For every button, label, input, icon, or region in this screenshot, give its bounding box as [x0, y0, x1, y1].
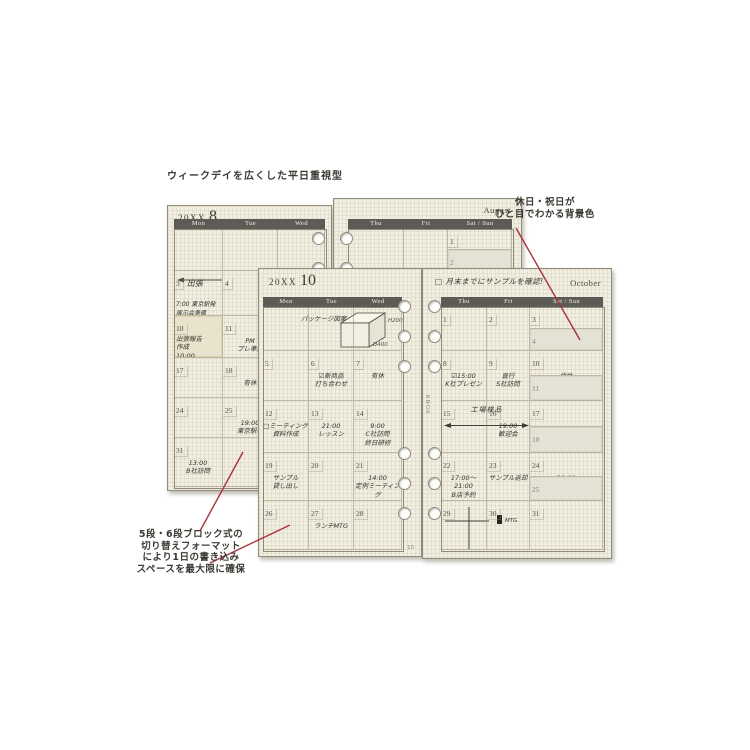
day-number: 18: [223, 366, 237, 377]
weekday-header-band: ThuFriSat / Sun: [348, 219, 512, 229]
brand-logo: KNOX: [424, 395, 430, 414]
october-right-page: □月末までにサンプルを確認! October KNOX 工場検品 MTG Thu…: [422, 268, 612, 559]
day-number: 9: [487, 359, 497, 370]
handwritten-note: ランチMTG: [309, 522, 353, 530]
handwritten-note: ☑新商品 打ち合わせ: [309, 372, 353, 389]
day-number: 3: [530, 315, 540, 326]
day-cell-25: 25: [530, 477, 603, 501]
weekday-header-band: ThuFriSat / Sun: [441, 297, 603, 307]
weekday-label: Wed: [295, 220, 308, 227]
day-number: 17: [530, 409, 544, 420]
day-number: 20: [309, 461, 323, 472]
day-number: 24: [174, 406, 188, 417]
memo-line: □月末までにサンプルを確認!: [435, 276, 543, 287]
day-cell-6: 6☑新商品 打ち合わせ: [309, 351, 354, 401]
title-month-number: 10: [300, 273, 316, 288]
day-cell: [404, 229, 448, 271]
october-left-page: 20XX 10 パッケージ図案 W250 H200 D400 10 MonTue…: [258, 268, 422, 557]
day-cell-18: 18: [530, 427, 603, 453]
weekday-header-band: MonTueWed: [263, 297, 402, 307]
handwritten-detail: 7:00 東京駅発 展示会準備: [174, 300, 222, 316]
memo-text: 月末までにサンプルを確認!: [446, 277, 544, 286]
day-entry-label: 出張: [187, 279, 203, 288]
day-number: 17: [174, 366, 188, 377]
day-cell-7: 7有休: [354, 351, 402, 401]
weekday-label: Thu: [458, 298, 470, 305]
binder-hole: [428, 477, 441, 490]
day-cell-15: 15: [441, 401, 487, 453]
binder-hole: [398, 360, 411, 373]
holiday-callout-line2: ひと目でわかる背景色: [488, 209, 602, 221]
october-page-title: 20XX 10: [269, 273, 316, 288]
day-number: 12: [263, 409, 277, 420]
day-cell-16: 1619:00 歓迎会: [487, 401, 530, 453]
product-image-canvas: ウィークデイを広くした平日重視型 休日・祝日が ひと目でわかる背景色 5段・6段…: [0, 0, 750, 750]
day-number: 16: [487, 409, 501, 420]
day-cell-29: 29: [441, 501, 487, 550]
weekday-label: Wed: [372, 298, 385, 305]
binder-hole: [398, 330, 411, 343]
day-number: 11: [223, 324, 236, 335]
day-number: 6: [309, 359, 319, 370]
october-month-label: October: [570, 278, 601, 288]
weekday-label: Fri: [422, 220, 431, 227]
day-cell: [174, 229, 223, 271]
day-cell-5: 5: [263, 351, 309, 401]
day-number: 21: [354, 461, 368, 472]
day-cell: [263, 307, 309, 351]
binder-hole: [398, 447, 411, 460]
format-callout: 5段・6段ブロック式の 切り替えフォーマット により1日の書き込み スペースを最…: [132, 529, 250, 575]
handwritten-note: 19:00 歓迎会: [487, 422, 529, 439]
day-number: 24: [530, 461, 544, 472]
binder-hole: [398, 507, 411, 520]
day-cell: [354, 307, 402, 351]
binder-hole: [428, 330, 441, 343]
binder-hole: [428, 507, 441, 520]
day-number: 10: [174, 324, 188, 335]
checkbox-icon: □: [435, 277, 443, 286]
day-cell-14: 149:00 C社訪問 終日研修: [354, 401, 402, 453]
weekday-label: Fri: [504, 298, 513, 305]
day-cell-1: 1: [441, 307, 487, 351]
day-number: 18: [530, 435, 544, 446]
day-number: 11: [530, 384, 543, 395]
handwritten-note: サンプル 貸し出し: [263, 474, 308, 491]
day-cell-30: 30: [487, 501, 530, 550]
day-number: 27: [309, 509, 323, 520]
day-number: 25: [530, 485, 544, 496]
holiday-callout: 休日・祝日が ひと目でわかる背景色: [488, 197, 602, 220]
day-cell-13: 1321:00 レッスン: [309, 401, 354, 453]
format-callout-line3: により1日の書き込み: [132, 552, 250, 564]
day-number: 29: [441, 509, 455, 520]
day-cell: [309, 307, 354, 351]
day-number: 25: [223, 406, 237, 417]
day-cell-31: 31: [530, 501, 603, 550]
heading-label: ウィークデイを広くした平日重視型: [167, 171, 343, 183]
day-cell: [223, 229, 278, 271]
day-number: 5: [263, 359, 273, 370]
handwritten-note: 21:00 レッスン: [309, 422, 353, 439]
day-number: 31: [174, 446, 188, 457]
day-cell-21: 2114:00 定例ミーティング: [354, 453, 402, 501]
day-cell-20: 20: [309, 453, 354, 501]
format-callout-line2: 切り替えフォーマット: [132, 541, 250, 553]
weekday-label: Tue: [326, 298, 337, 305]
day-cell-2: 2: [487, 307, 530, 351]
day-number: 2: [487, 315, 497, 326]
day-cell-19: 19サンプル 貸し出し: [263, 453, 309, 501]
day-number: 14: [354, 409, 368, 420]
binder-hole: [428, 300, 441, 313]
day-number: 4: [530, 337, 540, 348]
weekday-label: Mon: [192, 220, 205, 227]
weekday-label: Thu: [370, 220, 382, 227]
day-number: 28: [354, 509, 368, 520]
day-cell-17: 17: [530, 401, 603, 427]
binder-hole: [398, 477, 411, 490]
binder-hole: [398, 300, 411, 313]
handwritten-note: 9:00 C社訪問 終日研修: [354, 422, 401, 447]
title-year: 20XX: [269, 277, 297, 288]
day-cell-27: 27ランチMTG: [309, 501, 354, 550]
holiday-callout-line1: 休日・祝日が: [488, 197, 602, 209]
day-number: 22: [441, 461, 455, 472]
handwritten-note: 13:00 B社訪問: [174, 459, 222, 476]
handwritten-note: □ミーティング 資料作成: [263, 422, 308, 439]
day-cell-28: 28: [354, 501, 402, 550]
weekday-label: Sat / Sun: [466, 220, 493, 227]
handwritten-note: 出張報告 作成 10:00 ミーティング: [174, 335, 222, 358]
day-cell-17: 17: [174, 358, 223, 398]
weekday-label: Mon: [279, 298, 292, 305]
day-cell-3: 3: [530, 307, 603, 329]
day-number: 23: [487, 461, 501, 472]
page-number: 10: [407, 545, 414, 551]
day-number: 8: [441, 359, 451, 370]
day-cell: [348, 229, 404, 271]
handwritten-note: 直行 S社訪問: [487, 372, 529, 389]
handwritten-note: 17:00〜 21:00 B店予約: [441, 474, 486, 499]
day-number: 31: [530, 509, 544, 520]
day-number: 30: [487, 509, 501, 520]
weekday-header-band: MonTueWed: [174, 219, 325, 229]
day-cell-24: 2420:00 □□□くん会: [530, 453, 603, 477]
day-number: 1: [448, 237, 458, 248]
day-cell-10: 10代休: [530, 351, 603, 376]
day-cell-11: 11: [530, 376, 603, 401]
day-cell-10: 10出張報告 作成 10:00 ミーティング: [174, 316, 223, 358]
day-number: 15: [441, 409, 455, 420]
handwritten-note: ☑15:00 K社プレゼン: [441, 372, 486, 389]
day-cell-3: 3出張7:00 東京駅発 展示会準備: [174, 271, 223, 316]
format-callout-line1: 5段・6段ブロック式の: [132, 529, 250, 541]
day-cell-24: 24: [174, 398, 223, 438]
day-number: 7: [354, 359, 364, 370]
day-cell-8: 8☑15:00 K社プレゼン: [441, 351, 487, 401]
day-number: 1: [441, 315, 451, 326]
day-number: 19: [263, 461, 277, 472]
day-number: 4: [223, 279, 233, 290]
handwritten-note: サンプル返却: [487, 474, 529, 482]
binder-hole: [428, 360, 441, 373]
day-number: 26: [263, 509, 277, 520]
weekday-label: Sat / Sun: [553, 298, 580, 305]
day-cell-1: 1: [448, 229, 512, 250]
day-number: 13: [309, 409, 323, 420]
day-cell-9: 9直行 S社訪問: [487, 351, 530, 401]
binder-hole: [312, 232, 325, 245]
day-number: 3: [174, 279, 184, 290]
day-cell-31: 3113:00 B社訪問: [174, 438, 223, 487]
day-cell-26: 26: [263, 501, 309, 550]
day-cell-12: 12□ミーティング 資料作成: [263, 401, 309, 453]
day-cell-4: 4: [530, 329, 603, 351]
handwritten-note: 14:00 定例ミーティング: [354, 474, 401, 499]
binder-hole: [428, 447, 441, 460]
format-callout-line4: スペースを最大限に確保: [132, 564, 250, 576]
weekday-label: Tue: [245, 220, 256, 227]
handwritten-note: 有休: [354, 372, 401, 380]
binder-hole: [340, 232, 353, 245]
day-cell-23: 23サンプル返却: [487, 453, 530, 501]
day-cell-22: 2217:00〜 21:00 B店予約: [441, 453, 487, 501]
day-number: 10: [530, 359, 544, 370]
